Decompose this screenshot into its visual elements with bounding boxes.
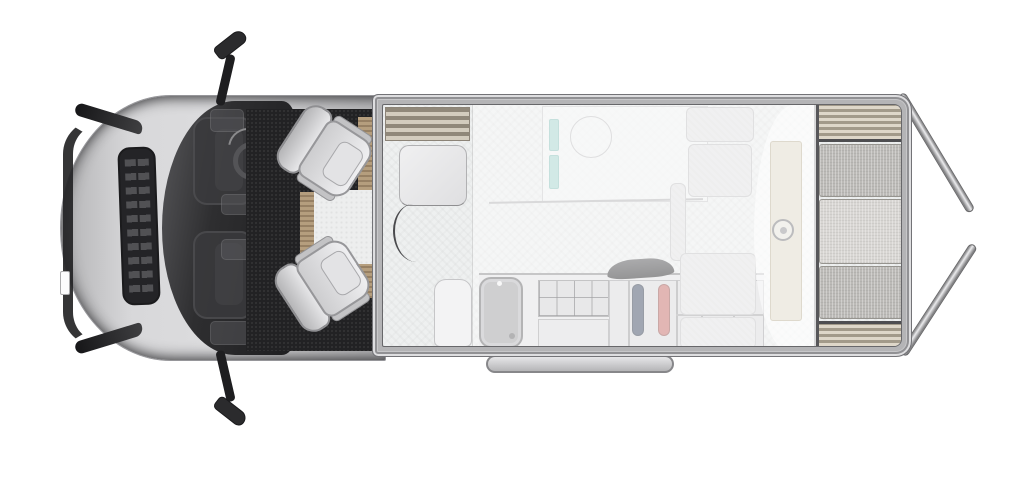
roof-vent-fan (772, 219, 794, 241)
interior-floor (382, 104, 902, 347)
curved-bench-edge (393, 204, 429, 262)
front-bumper-trim (63, 120, 97, 346)
front-grille (117, 146, 160, 305)
ottoman-seat (434, 279, 472, 347)
coach-body-frame (372, 94, 912, 357)
mattress-section-top (819, 144, 902, 197)
cab-door-panel-top (210, 109, 244, 132)
mattress-section-bottom (819, 266, 902, 319)
roof-vent-fan-hub (780, 227, 787, 234)
dining-table (399, 145, 467, 206)
rear-shelf-bottom (819, 321, 902, 347)
rear-shelf-top (819, 105, 902, 142)
license-plate-bracket (60, 271, 70, 295)
campervan-floorplan (0, 0, 1024, 491)
grille-slots-right (138, 159, 154, 293)
entry-step-exterior (486, 355, 674, 373)
mattress-section-middle (819, 199, 902, 264)
entry-door-step (385, 107, 470, 141)
cab-door-panel-bottom (210, 321, 250, 345)
